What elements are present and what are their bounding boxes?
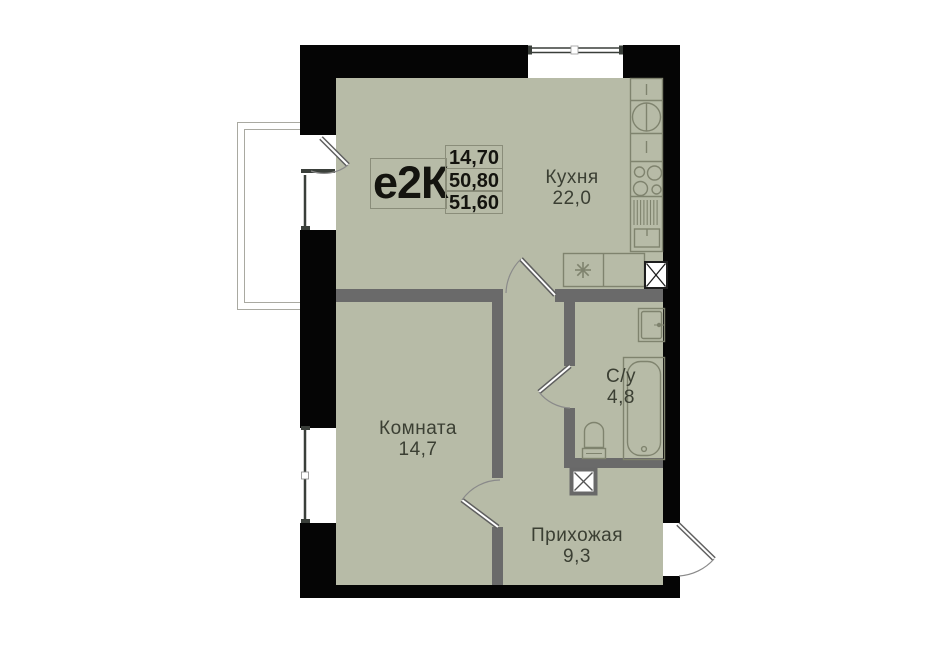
area-value: 50,80 (445, 168, 503, 192)
room-label: Комната 14,7 (358, 418, 478, 460)
kitchen-area: 22,0 (512, 188, 632, 209)
balcony-door-icon (311, 138, 348, 173)
floor-plan: е2К 14,70 50,80 51,60 Кухня 22,0 Комната… (0, 0, 950, 672)
balcony-window-icon (301, 169, 335, 230)
room-name: Комната (358, 418, 478, 439)
entry-door-icon (678, 524, 714, 576)
plan-symbols-layer (0, 0, 950, 672)
bathroom-sink-icon (639, 309, 665, 342)
kitchen-label: Кухня 22,0 (512, 167, 632, 209)
room-window-icon (301, 426, 310, 523)
kitchen-window-icon (528, 46, 623, 55)
dishwasher-icon (634, 200, 660, 247)
hall-vent-shaft-icon (572, 470, 596, 494)
kitchen-sink-icon (633, 103, 661, 131)
room-area: 14,7 (358, 439, 478, 460)
living-room-door-icon (506, 259, 555, 295)
area-value: 14,70 (445, 145, 503, 169)
area-value: 51,60 (445, 190, 503, 214)
stove-icon (634, 166, 662, 196)
washing-machine-icon (564, 254, 645, 287)
asterisk-icon (575, 262, 591, 278)
hallway-label: Прихожая 9,3 (517, 525, 637, 567)
hallway-area: 9,3 (517, 546, 637, 567)
apartment-type-label: е2К (373, 159, 446, 206)
bathroom-area: 4,8 (581, 387, 661, 408)
bathroom-name: С/у (581, 366, 661, 387)
kitchen-vent-shaft-icon (645, 262, 667, 288)
kitchen-name: Кухня (512, 167, 632, 188)
bathroom-door-icon (539, 366, 570, 408)
room-door-icon (462, 480, 500, 527)
area-value-boxes: 14,70 50,80 51,60 (445, 145, 503, 214)
bathroom-label: С/у 4,8 (581, 366, 661, 408)
toilet-icon (583, 423, 606, 459)
hallway-name: Прихожая (517, 525, 637, 546)
apartment-type-box: е2К (370, 158, 447, 209)
